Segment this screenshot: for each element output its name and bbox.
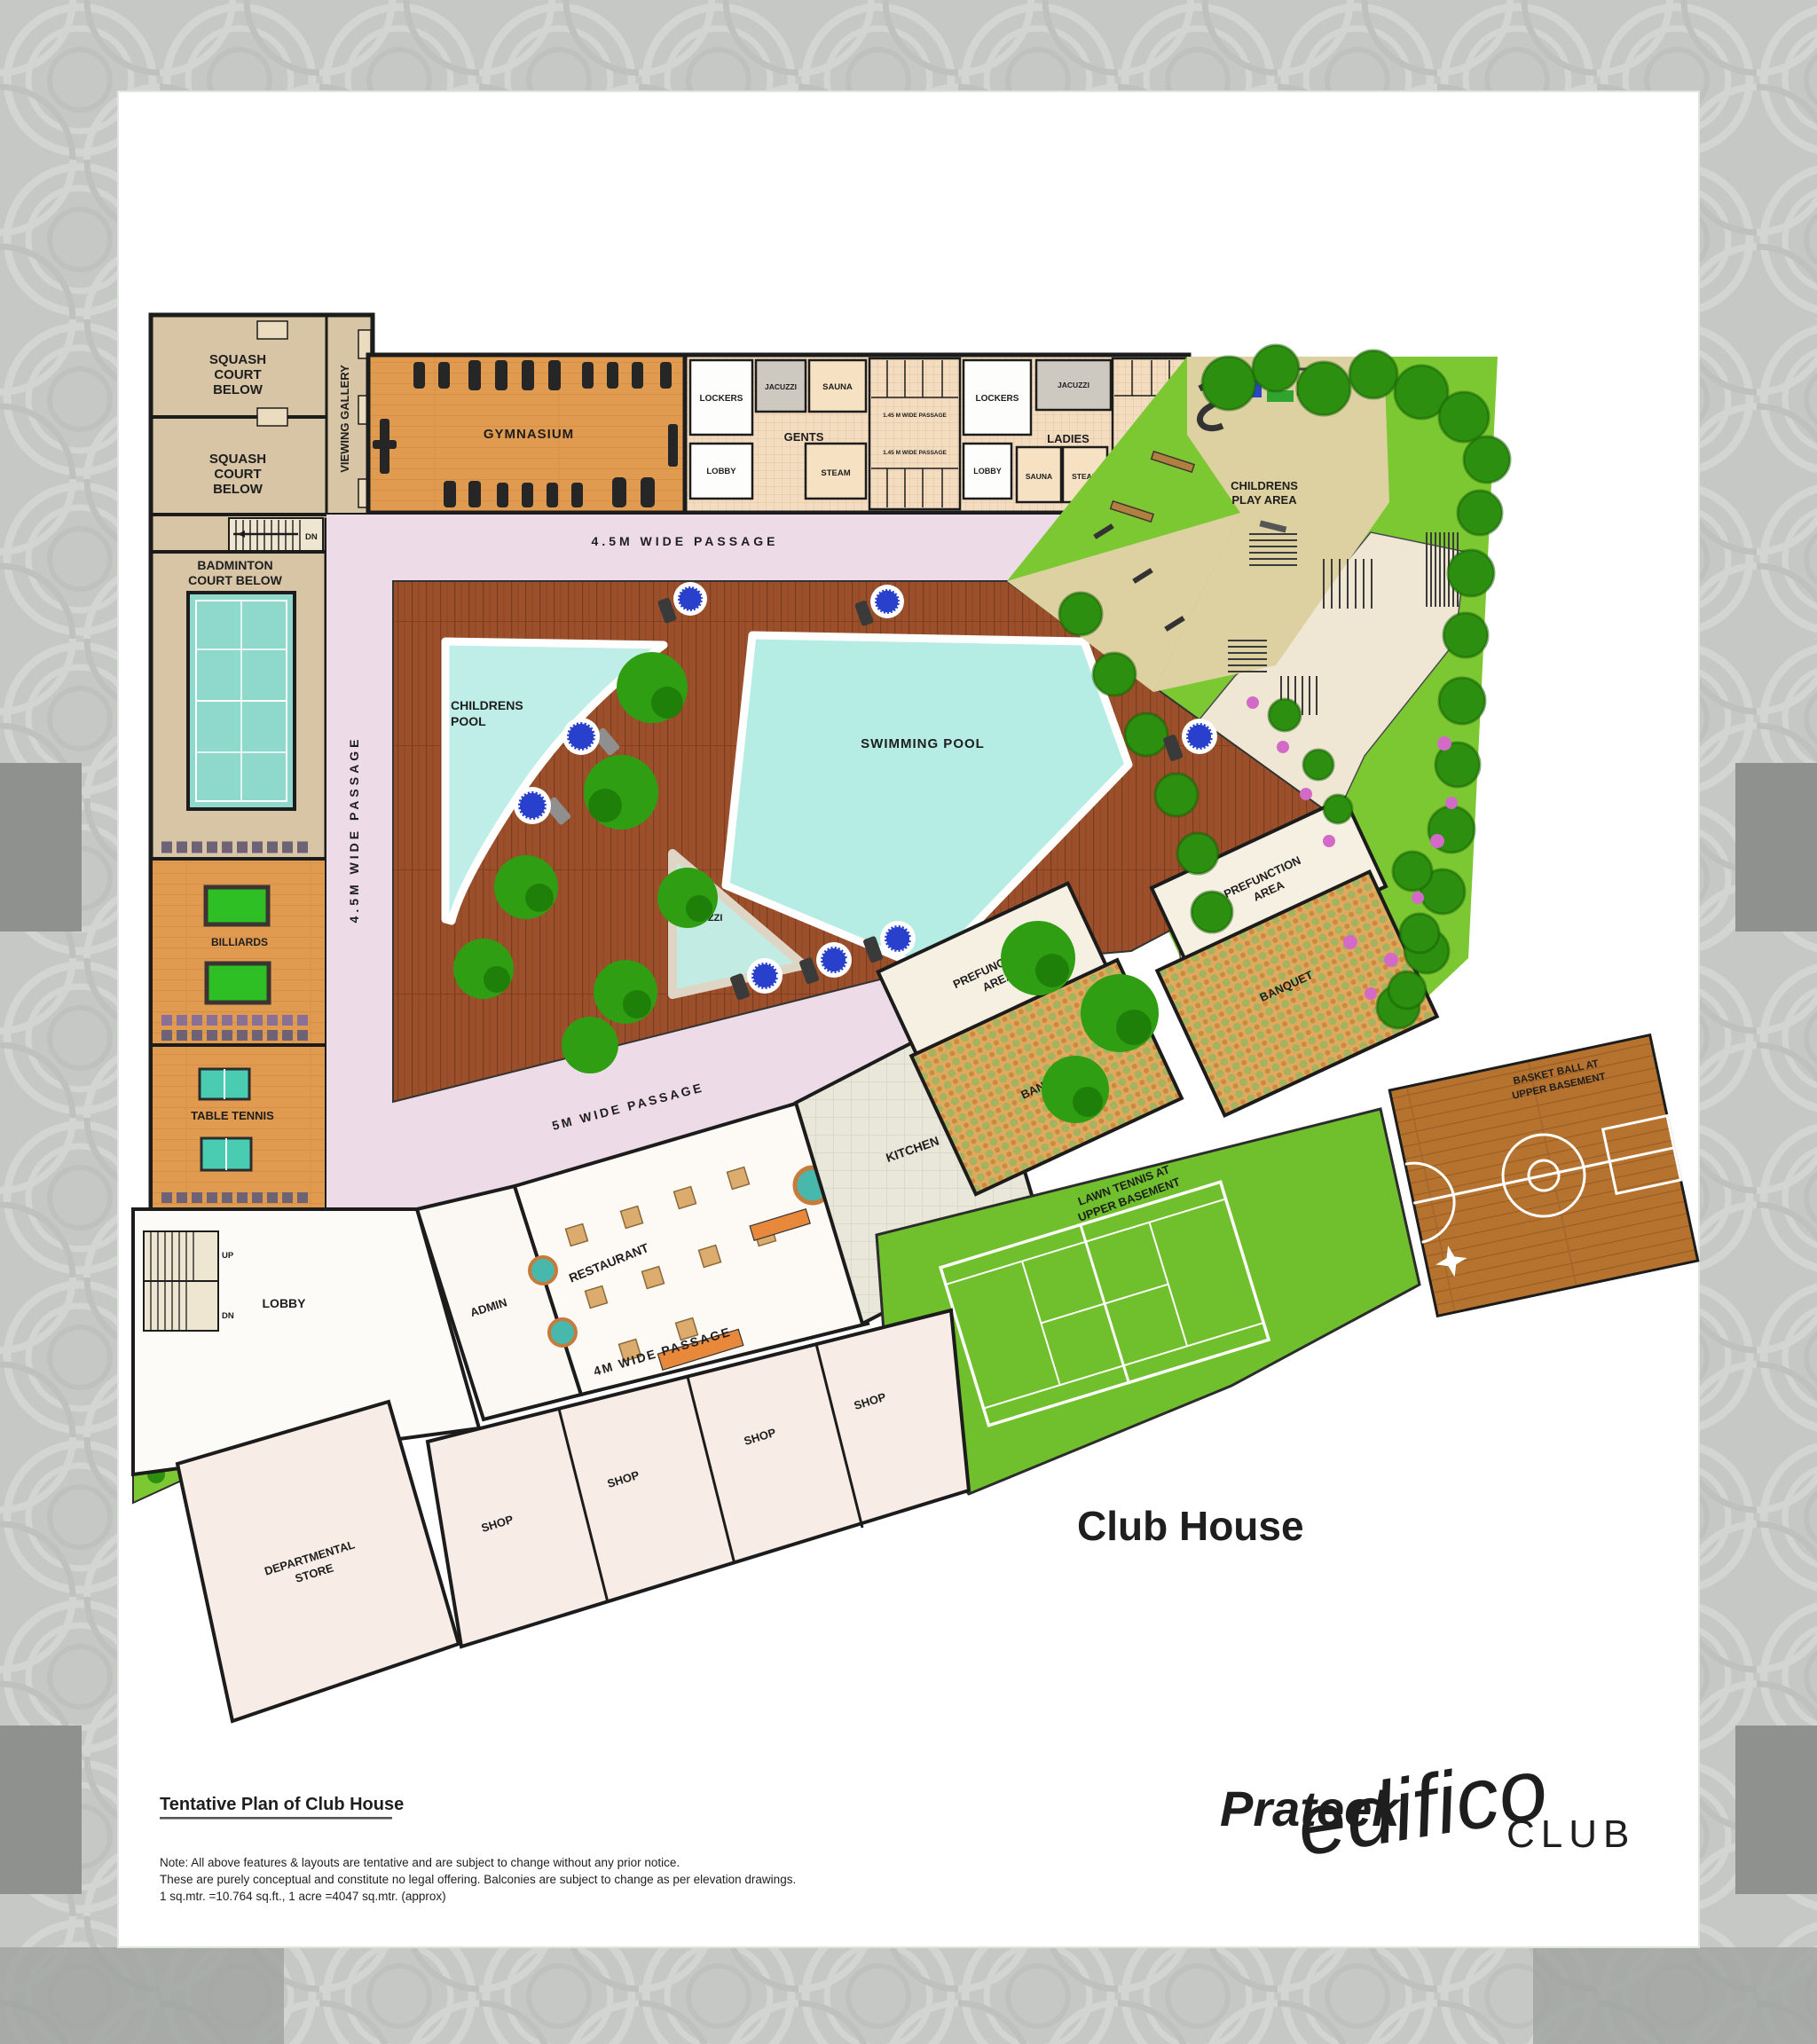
table-tennis-table [200,1069,249,1099]
stairs-up-label: UP [222,1251,234,1261]
note-line-3: 1 sq.mtr. =10.764 sq.ft., 1 acre =4047 s… [160,1890,446,1903]
gents-steam-label: STEAM [821,468,850,478]
room-viewing-gallery: VIEWING GALLERY [338,365,351,473]
passage-45-left-label: 4.5M WIDE PASSAGE [347,736,361,924]
room-ladies-label: LADIES [1047,432,1089,445]
room-squash-court-1: SQUASHCOURTBELOW [209,352,266,397]
border-block-right-lower [1735,1726,1817,1894]
room-badminton: BADMINTONCOURT BELOW [188,558,283,587]
gents-lobby-label: LOBBY [706,467,736,476]
border-block-left [0,763,82,932]
gents-jacuzzi-label: JACUZZI [765,382,797,391]
stairs-dn-label: DN [305,532,318,542]
room-gents-label: GENTS [784,430,824,444]
border-block-bottom-left [0,1947,284,2044]
room-billiards: BILLIARDS [211,936,268,948]
note-line-2: These are purely conceptual and constitu… [160,1873,796,1886]
gents-lockers-label: LOCKERS [700,394,743,404]
clubhouse-plan-canvas: SQUASHCOURTBELOW SQUASHCOURTBELOW VIEWIN… [0,0,1817,2044]
childrens-play-label: CHILDRENSPLAY AREA [1231,479,1298,507]
ladies-lockers-label: LOCKERS [976,394,1019,404]
billiards-table [207,963,269,1002]
border-block-right [1735,763,1817,932]
badminton-court [188,593,295,809]
stairs-down-icon: DN [229,518,323,552]
border-block-bottom-right [1533,1947,1817,2044]
lobby-label: LOBBY [263,1296,307,1310]
ladies-jacuzzi-label: JACUZZI [1058,381,1089,389]
plan-heading: Tentative Plan of Club House [160,1795,404,1814]
stairs-dn2-label: DN [222,1311,234,1321]
note-line-1: Note: All above features & layouts are t… [160,1856,680,1869]
gents-sauna-label: SAUNA [822,382,853,392]
heading-underline [160,1817,392,1820]
passage-45-top-label: 4.5M WIDE PASSAGE [592,534,779,548]
door-slab [257,321,287,339]
room-table-tennis: TABLE TENNIS [191,1109,274,1122]
swimming-pool-label: SWIMMING POOL [861,736,985,751]
billiards-table [206,887,268,924]
table-tennis-table [201,1138,251,1170]
logo-suffix-club: CLUB [1506,1812,1635,1856]
room-gymnasium: GYMNASIUM [484,427,574,442]
door-slab [257,408,287,426]
passage-145-bottom-label: 1.45 M WIDE PASSAGE [883,450,947,456]
border-block-left-lower [0,1726,82,1894]
ladies-sauna-label: SAUNA [1026,472,1052,481]
ladies-lobby-label: LOBBY [973,467,1002,476]
passage-145-top-label: 1.45 M WIDE PASSAGE [883,413,947,419]
room-squash-court-2: SQUASHCOURTBELOW [209,452,266,497]
club-house-caption: Club House [1077,1503,1304,1549]
